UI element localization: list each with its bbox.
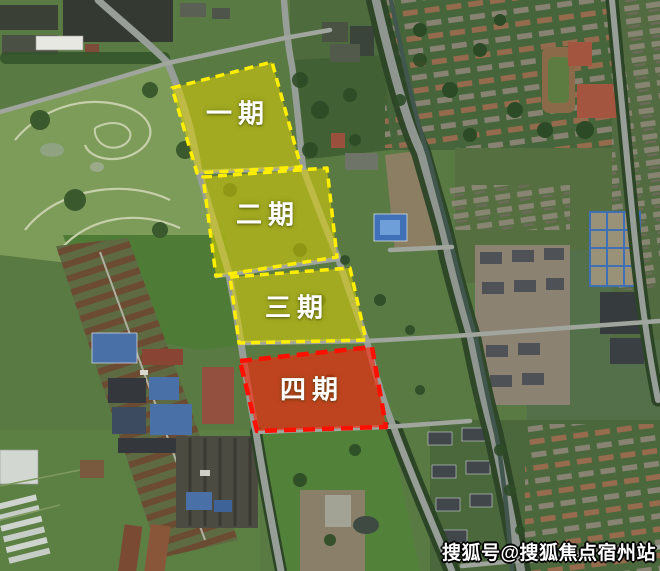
zone-phase-1-label: 一期: [206, 94, 270, 131]
blue-roof-building: [92, 333, 137, 363]
red-roof-building: [202, 367, 234, 424]
pond-small: [353, 516, 379, 534]
zone-phase-2-label: 二期: [236, 195, 300, 232]
zone-phase-4-label: 四期: [280, 370, 344, 407]
dark-fields: [176, 436, 258, 528]
satellite-map: 一期 二期 三期 四期 搜狐号@搜狐焦点宿州站: [0, 0, 660, 571]
watermark: 搜狐号@搜狐焦点宿州站: [442, 538, 656, 565]
satellite-base: [0, 0, 660, 571]
white-roof-building: [36, 36, 83, 50]
zone-phase-3-label: 三期: [265, 288, 329, 325]
school-building: [568, 42, 592, 66]
park-pond: [90, 162, 104, 172]
